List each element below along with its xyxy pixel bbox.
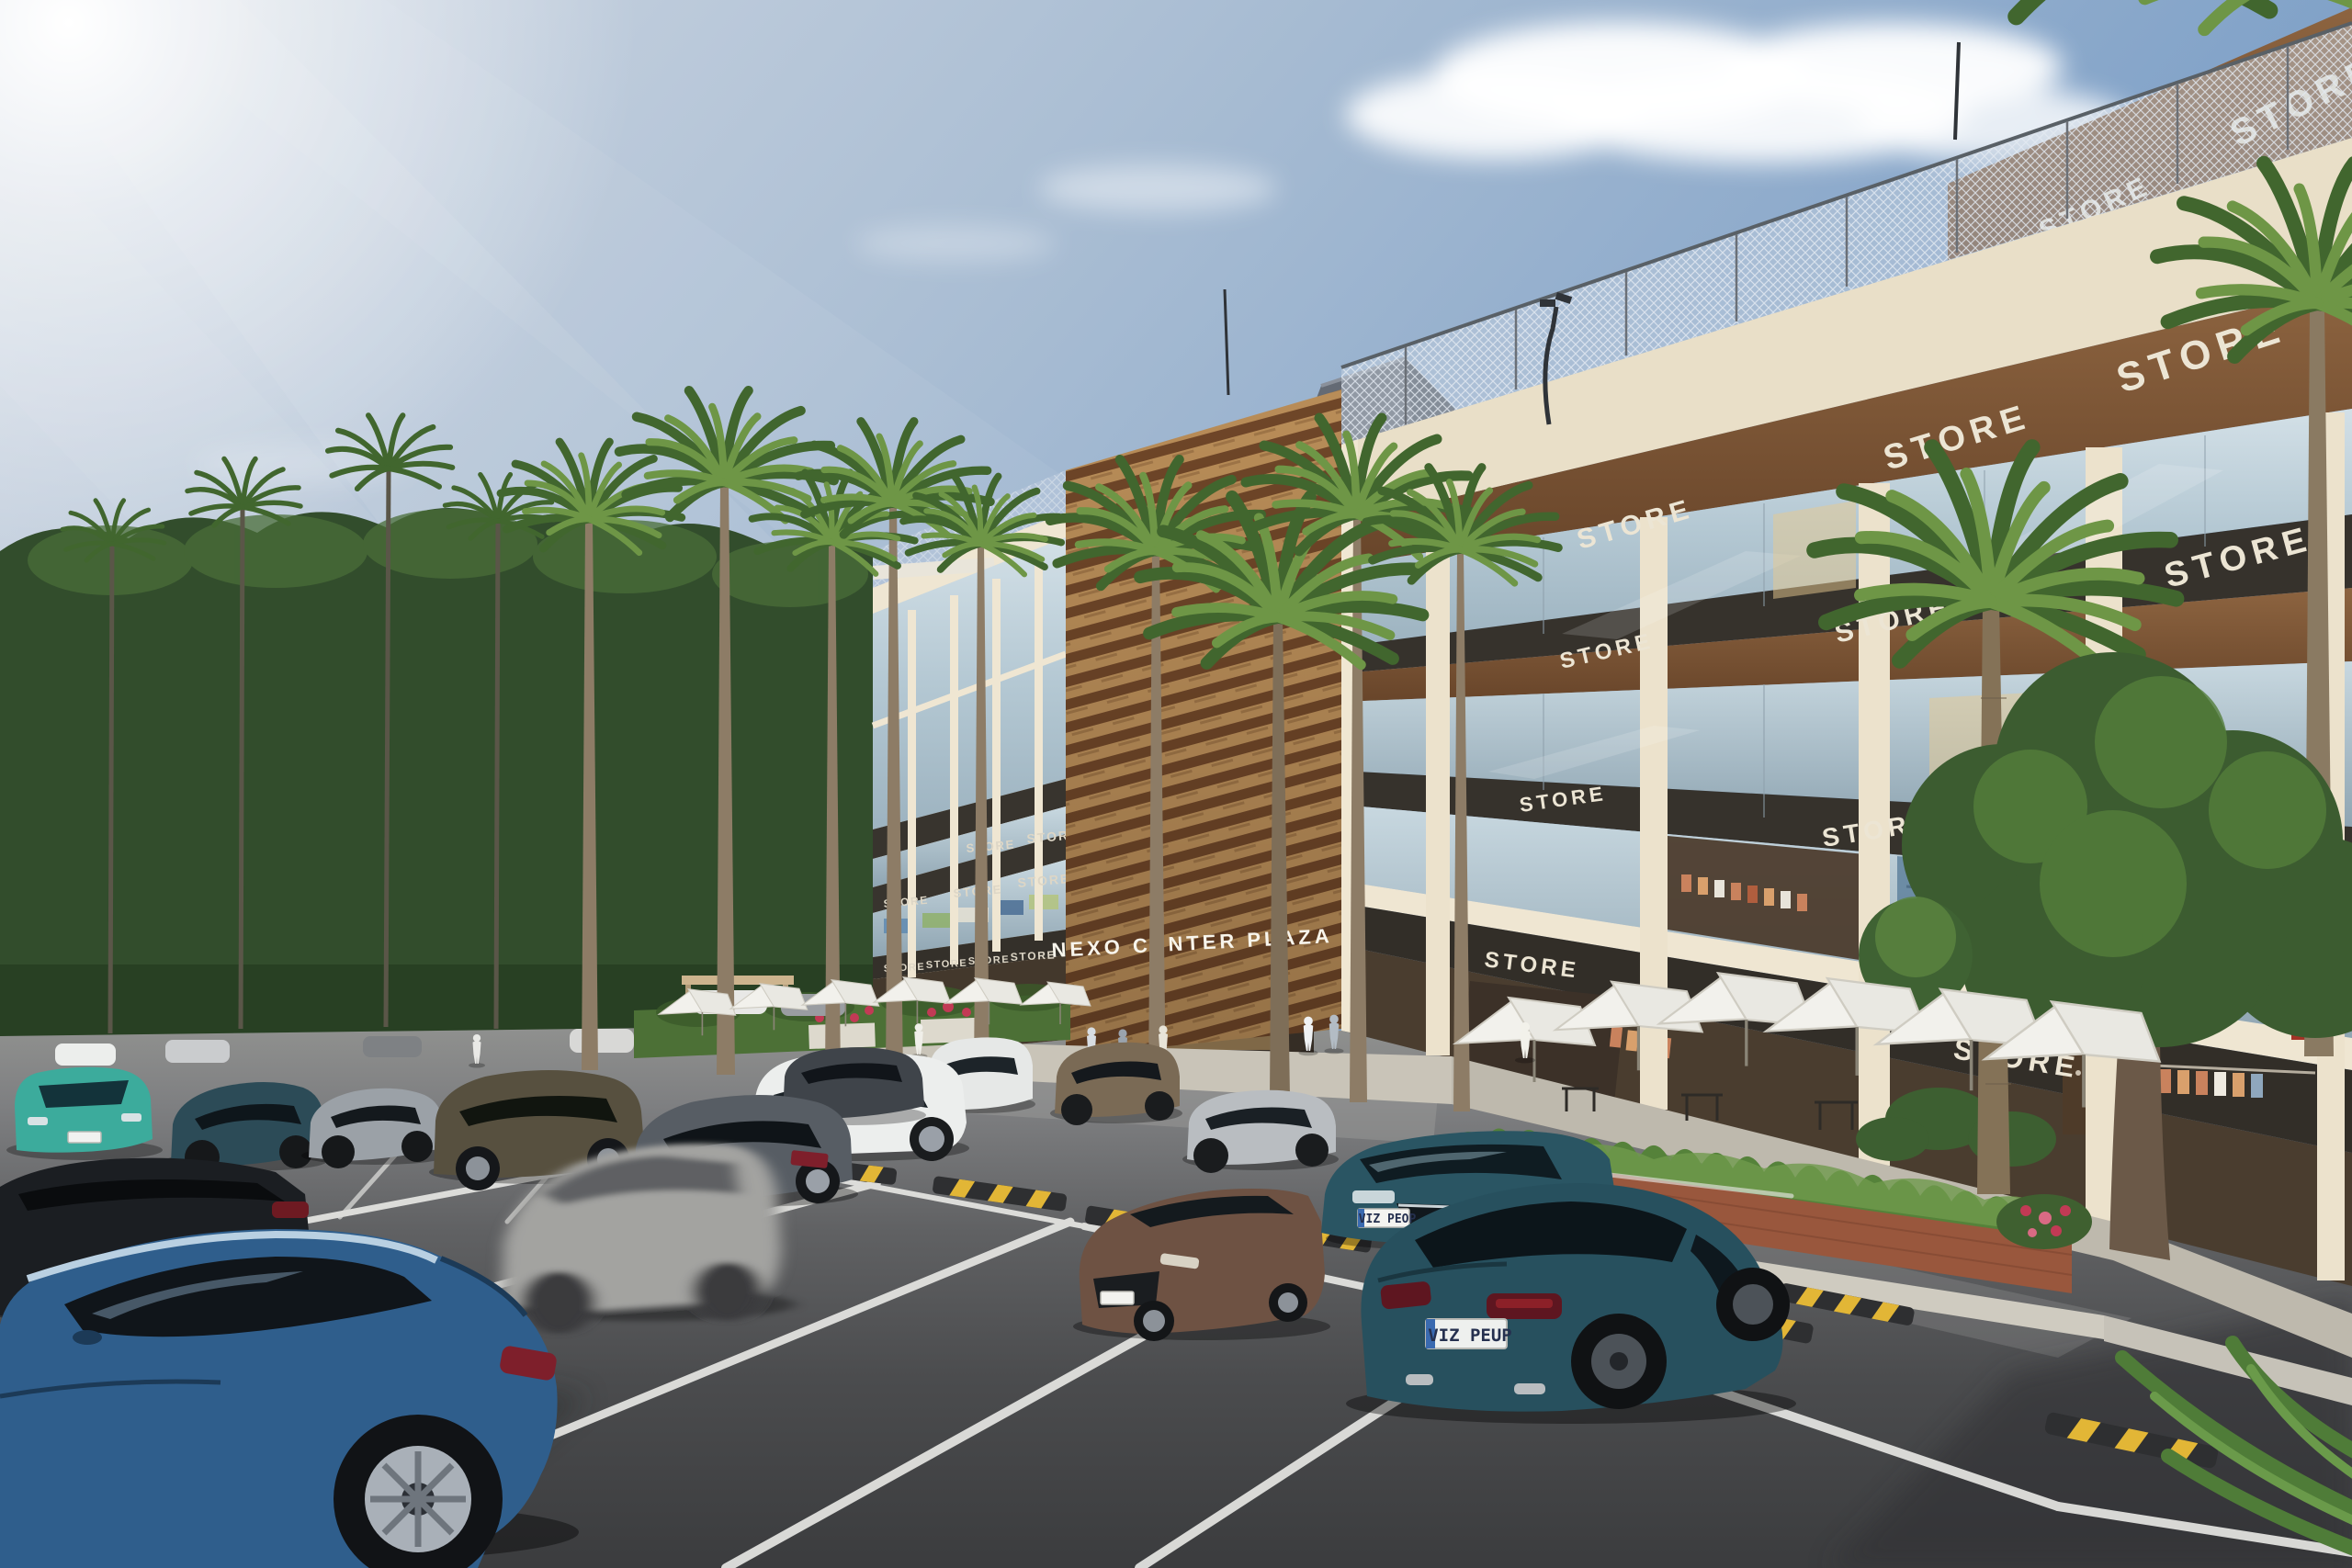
license-plate-blank (68, 1132, 101, 1143)
license-plate-blank (1101, 1292, 1134, 1304)
pergola (682, 976, 794, 985)
plaza-scene: STORE STORE STORE STORE STORE STORE STOR… (0, 0, 2352, 1568)
plate-text-rear: VIZ PEUP (1428, 1325, 1512, 1346)
store-sign: STORE (926, 958, 968, 971)
license-plate-front: VIZ PEOP (1358, 1209, 1416, 1227)
license-plate-rear: VIZ PEUP (1426, 1319, 1512, 1348)
flower-cluster-right (1996, 1194, 2092, 1249)
side-mirror (73, 1330, 102, 1345)
taillight (272, 1201, 309, 1218)
scene-canvas: STORE STORE STORE STORE STORE STORE STOR… (0, 0, 2352, 1568)
slat-tower: NEXO CENTER PLAZA (1051, 389, 1341, 1056)
headlight (1352, 1190, 1395, 1203)
car-teal-crossover (6, 1067, 163, 1160)
plate-text-front: VIZ PEOP (1359, 1213, 1417, 1226)
store-sign: STORE (968, 954, 1011, 967)
store-sign: STORE (1010, 948, 1056, 964)
car-silver-hatch (1182, 1090, 1339, 1173)
